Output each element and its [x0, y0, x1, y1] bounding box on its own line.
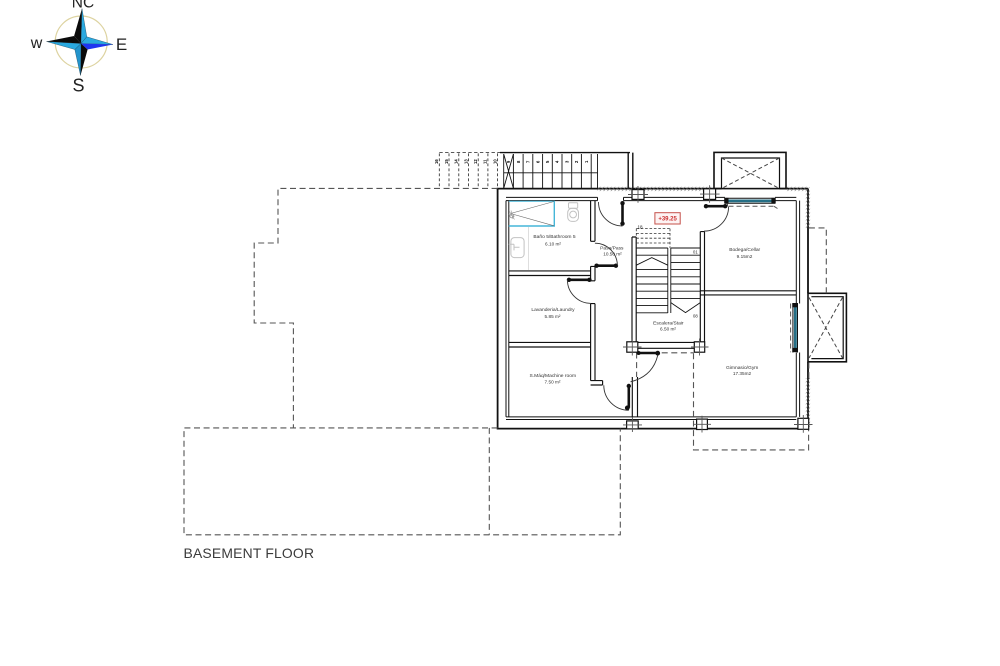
svg-text:Escalera/Stair: Escalera/Stair — [653, 321, 684, 327]
svg-text:Gimnasio/Gym: Gimnasio/Gym — [726, 365, 758, 371]
svg-text:NC: NC — [72, 0, 94, 12]
svg-text:S: S — [72, 76, 84, 96]
svg-text:S.Máq/Machine room: S.Máq/Machine room — [530, 373, 576, 379]
svg-text:17.35m2: 17.35m2 — [733, 371, 752, 376]
svg-text:13: 13 — [463, 159, 468, 164]
svg-text:08: 08 — [693, 314, 698, 319]
svg-text:18: 18 — [638, 225, 644, 230]
svg-text:Lavanderia/Laundry: Lavanderia/Laundry — [531, 307, 575, 313]
svg-text:E: E — [116, 35, 127, 54]
svg-text:Baño 5/Bathroom 5: Baño 5/Bathroom 5 — [533, 234, 575, 240]
svg-text:+39.25: +39.25 — [658, 217, 677, 223]
svg-text:01: 01 — [693, 249, 698, 254]
svg-text:10: 10 — [492, 159, 497, 164]
svg-text:15: 15 — [444, 159, 449, 164]
svg-text:12: 12 — [473, 159, 478, 164]
svg-text:6.10 m²: 6.10 m² — [545, 241, 561, 246]
svg-text:16: 16 — [434, 159, 439, 164]
svg-text:BASEMENT FLOOR: BASEMENT FLOOR — [184, 545, 315, 561]
svg-text:10.50 m²: 10.50 m² — [603, 252, 622, 257]
svg-text:14: 14 — [454, 159, 459, 164]
svg-text:Paso/Pass: Paso/Pass — [600, 246, 624, 252]
svg-text:11: 11 — [483, 159, 488, 164]
svg-text:5.85 m²: 5.85 m² — [545, 314, 561, 319]
svg-text:Bodega/Cellar: Bodega/Cellar — [729, 247, 760, 253]
svg-text:9.15m2: 9.15m2 — [737, 254, 753, 259]
svg-text:6.50 m²: 6.50 m² — [660, 327, 676, 332]
svg-text:w: w — [30, 35, 43, 52]
svg-text:7.50 m²: 7.50 m² — [545, 380, 561, 385]
